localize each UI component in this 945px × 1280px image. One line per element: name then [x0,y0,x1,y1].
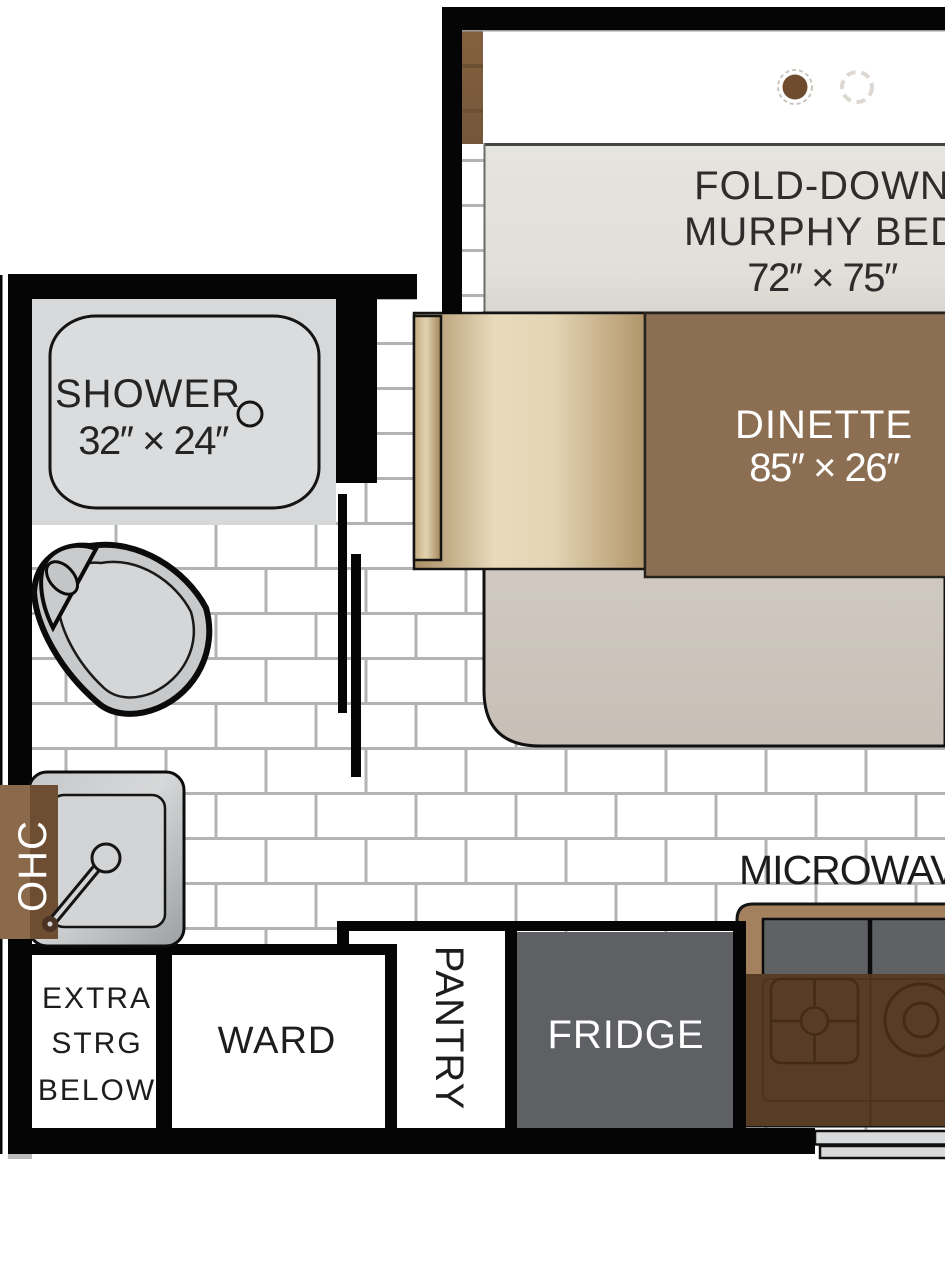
svg-text:STRG: STRG [51,1027,142,1060]
svg-text:85″ × 26″: 85″ × 26″ [749,446,900,490]
svg-text:OHC: OHC [11,820,55,912]
svg-text:WARD: WARD [218,1020,337,1062]
svg-text:MICROWAVE: MICROWAVE [739,847,945,893]
svg-text:32″ × 24″: 32″ × 24″ [78,419,229,463]
svg-text:BELOW: BELOW [38,1074,156,1107]
svg-text:PANTRY: PANTRY [427,946,471,1111]
svg-text:72″ × 75″: 72″ × 75″ [747,256,898,300]
svg-text:SHOWER: SHOWER [55,372,241,416]
svg-text:DINETTE: DINETTE [735,403,913,447]
svg-text:FOLD-DOWN: FOLD-DOWN [694,164,945,208]
svg-text:EXTRA: EXTRA [42,982,152,1015]
svg-text:MURPHY BED: MURPHY BED [684,210,945,254]
svg-text:FRIDGE: FRIDGE [547,1013,704,1057]
